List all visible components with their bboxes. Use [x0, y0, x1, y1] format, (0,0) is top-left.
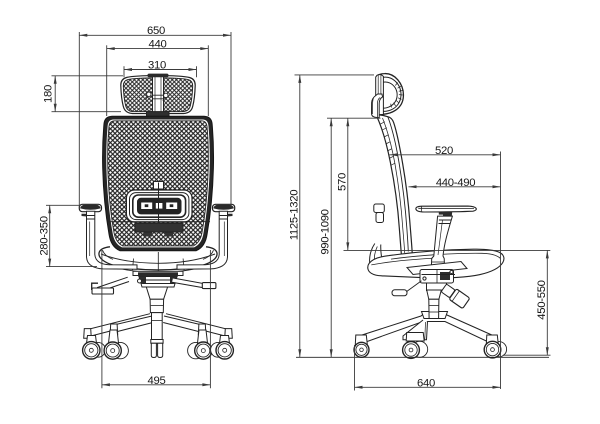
svg-text:495: 495 — [148, 375, 166, 387]
svg-text:570: 570 — [336, 173, 348, 191]
svg-text:180: 180 — [43, 85, 55, 103]
svg-text:520: 520 — [435, 145, 453, 157]
svg-text:440: 440 — [149, 39, 167, 51]
svg-text:310: 310 — [148, 60, 166, 72]
svg-text:440-490: 440-490 — [436, 177, 475, 189]
svg-text:1125-1320: 1125-1320 — [288, 190, 300, 241]
svg-text:450-550: 450-550 — [536, 280, 548, 319]
svg-text:280-350: 280-350 — [39, 216, 51, 255]
svg-text:990-1090: 990-1090 — [320, 209, 332, 254]
svg-text:650: 650 — [147, 25, 165, 37]
svg-text:640: 640 — [417, 377, 435, 389]
